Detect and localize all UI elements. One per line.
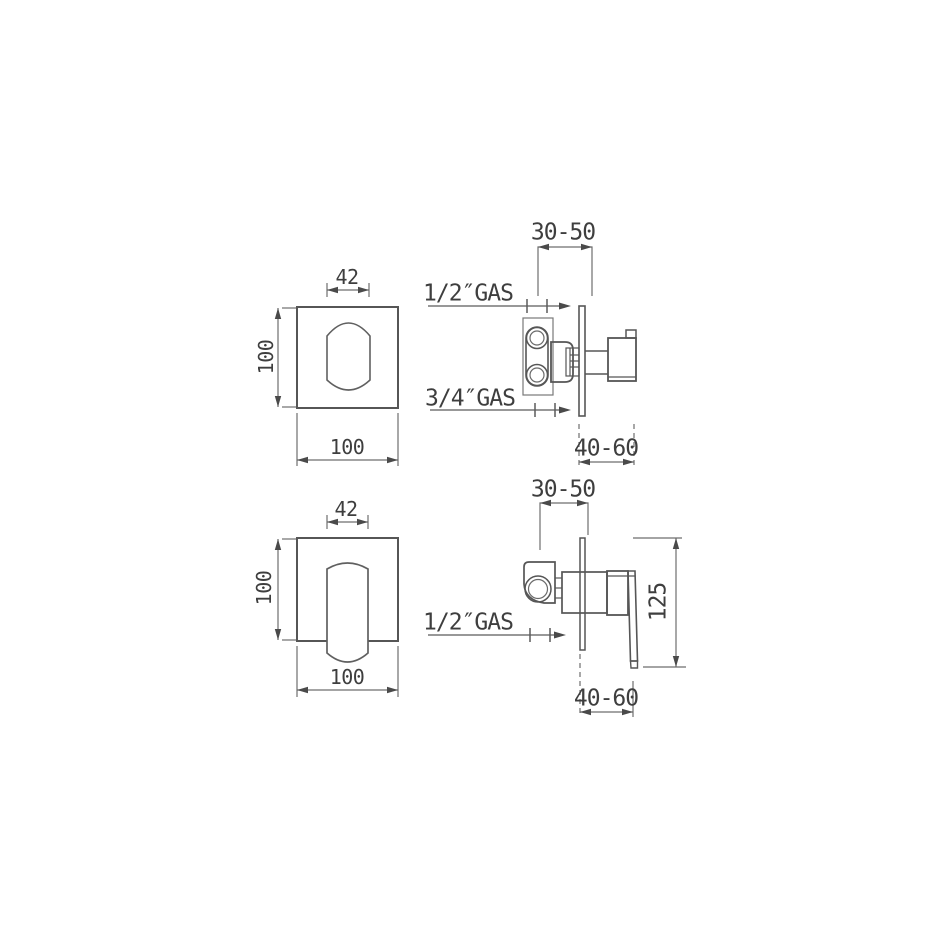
- arrowhead: [387, 457, 398, 463]
- arrowhead: [559, 303, 571, 310]
- lever-handle-front: [327, 563, 368, 662]
- dim-bracket: [540, 503, 588, 550]
- arrowhead: [673, 656, 679, 667]
- dim-label-mixer-inlet: 1/2″GAS: [423, 612, 513, 635]
- handle-cap: [607, 571, 628, 615]
- bottom-inlet-port: [527, 365, 548, 386]
- inlet-connector-lines: [555, 578, 562, 598]
- knob-handle: [608, 330, 636, 381]
- dim-label-mixer-overall-height: 125: [648, 583, 671, 622]
- lever-handle-side: [607, 571, 638, 668]
- arrowhead: [275, 629, 281, 640]
- arrowhead: [297, 687, 308, 693]
- inlet-fitting: [524, 562, 555, 603]
- technical-drawing-canvas: 42 100 100 30-50 1/2″GAS 3/4″GAS 40-60 4…: [0, 0, 950, 950]
- arrowhead: [275, 396, 281, 407]
- handle-neck: [585, 351, 608, 374]
- arrowhead: [554, 632, 566, 639]
- dim-label-mixer-plate-height: 100: [254, 571, 274, 606]
- port-inner-circle: [530, 331, 544, 345]
- dim-plate-height: [275, 539, 296, 640]
- wall-plate: [580, 538, 585, 650]
- lever-bar: [628, 571, 638, 661]
- lever-tip: [631, 661, 638, 668]
- dim-label-diverter-plate-height: 100: [256, 340, 276, 375]
- dim-label-diverter-recess-depth: 30-50: [531, 222, 595, 245]
- inlet-port: [525, 576, 551, 602]
- port-inner-circle: [530, 368, 544, 382]
- arrowhead: [297, 457, 308, 463]
- arrowhead: [275, 308, 281, 319]
- dim-label-mixer-projection: 40-60: [574, 688, 638, 711]
- dim-label-diverter-cutout-width: 42: [335, 267, 358, 287]
- arrowhead: [357, 519, 368, 525]
- arrowhead: [275, 539, 281, 550]
- top-inlet-port: [527, 328, 548, 349]
- handle-body: [608, 338, 636, 381]
- dim-label-mixer-recess-depth: 30-50: [531, 479, 595, 502]
- diverter-side-view: [428, 244, 636, 467]
- dim-label-diverter-bottom-inlet: 3/4″GAS: [425, 388, 515, 411]
- drawing-linework: [0, 0, 950, 950]
- wall-plate: [579, 306, 585, 416]
- dim-label-diverter-top-inlet: 1/2″GAS: [423, 283, 513, 306]
- trim-plate-outline: [297, 307, 398, 408]
- arrowhead: [387, 687, 398, 693]
- handle-cutout: [327, 323, 370, 390]
- dim-recess-depth: [540, 500, 588, 550]
- dim-label-mixer-cutout-width: 42: [334, 499, 357, 519]
- valve-body: [526, 327, 548, 386]
- arrowhead: [673, 538, 679, 549]
- dim-recess-depth: [538, 244, 592, 296]
- dim-label-diverter-plate-width: 100: [330, 437, 365, 457]
- arrowhead: [358, 287, 369, 293]
- trim-plate-outline: [297, 538, 398, 641]
- arrowhead: [559, 407, 571, 414]
- dim-label-diverter-projection: 40-60: [574, 438, 638, 461]
- dim-bracket: [538, 247, 592, 296]
- handle-tab: [626, 330, 636, 338]
- dim-label-mixer-plate-width: 100: [330, 667, 365, 687]
- port-inner-circle: [529, 580, 548, 599]
